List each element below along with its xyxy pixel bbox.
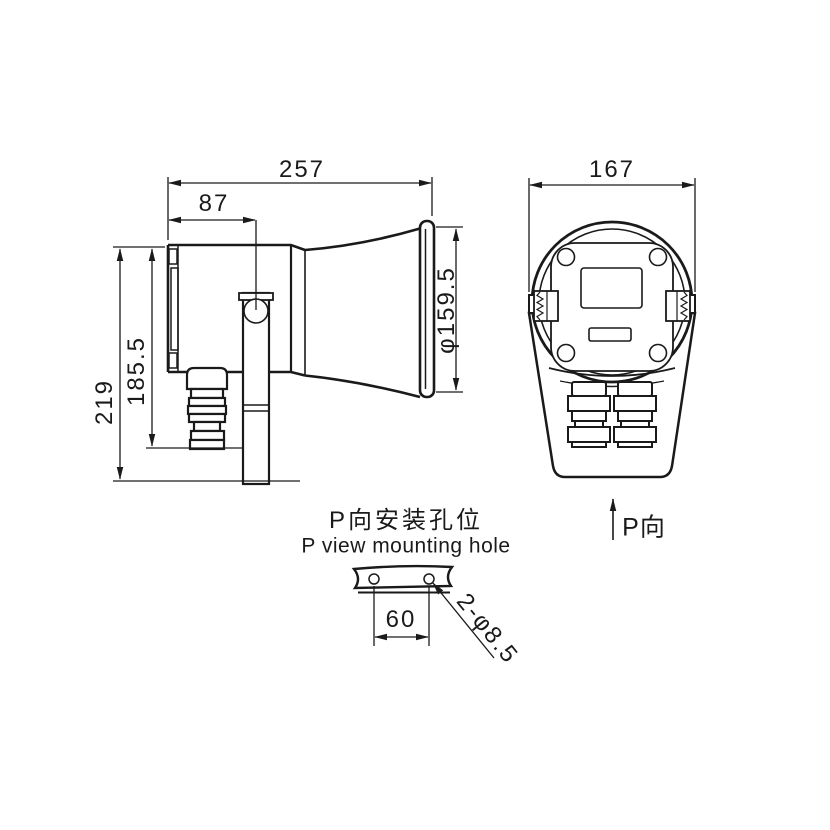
detail-title-en: P view mounting hole — [301, 536, 510, 557]
cable-gland-side — [187, 368, 227, 449]
horn-body-details — [169, 229, 426, 389]
detail-hole-left — [369, 574, 379, 584]
front-view — [529, 222, 695, 477]
dim-overall-length: 257 — [279, 158, 325, 182]
dim-horn-diameter: φ159.5 — [435, 266, 459, 354]
p-view-direction-label: P向 — [622, 516, 666, 541]
side-pivot-right — [666, 291, 695, 321]
dim-body-height: 185.5 — [125, 336, 149, 406]
detail-hole-right — [424, 574, 434, 584]
dim-hole-spacing: 60 — [386, 608, 417, 632]
technical-drawing-horn-speaker: 257 87 219 185.5 φ159.5 167 P向 P向安装孔位 P … — [0, 0, 830, 830]
dim-mount-hole-offset: 87 — [199, 192, 230, 216]
side-view — [168, 221, 434, 484]
dim-overall-height: 219 — [93, 379, 117, 425]
detail-title-cn: P向安装孔位 — [329, 509, 483, 533]
dim-overall-width: 167 — [589, 158, 635, 182]
side-pivot-left — [529, 291, 558, 321]
drawing-linework — [0, 0, 830, 830]
mounting-bracket-side — [239, 293, 273, 484]
